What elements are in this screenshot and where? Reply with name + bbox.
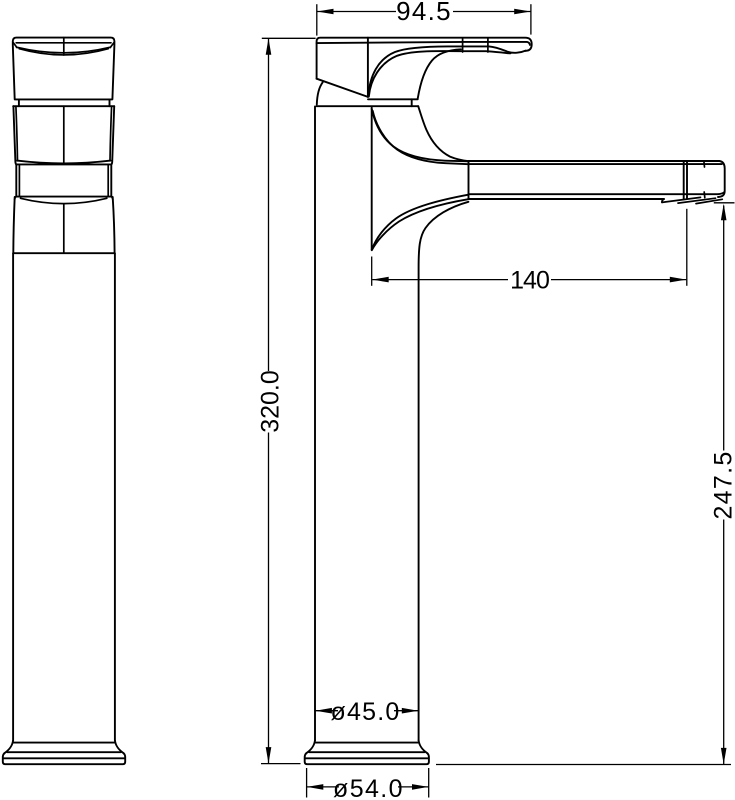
svg-text:140: 140 (510, 267, 549, 295)
svg-text:94.5: 94.5 (396, 0, 452, 26)
svg-text:320.0: 320.0 (257, 370, 285, 433)
svg-text:ø54.0: ø54.0 (333, 775, 404, 800)
svg-text:247.5: 247.5 (710, 450, 735, 519)
svg-text:ø45.0: ø45.0 (331, 698, 401, 726)
